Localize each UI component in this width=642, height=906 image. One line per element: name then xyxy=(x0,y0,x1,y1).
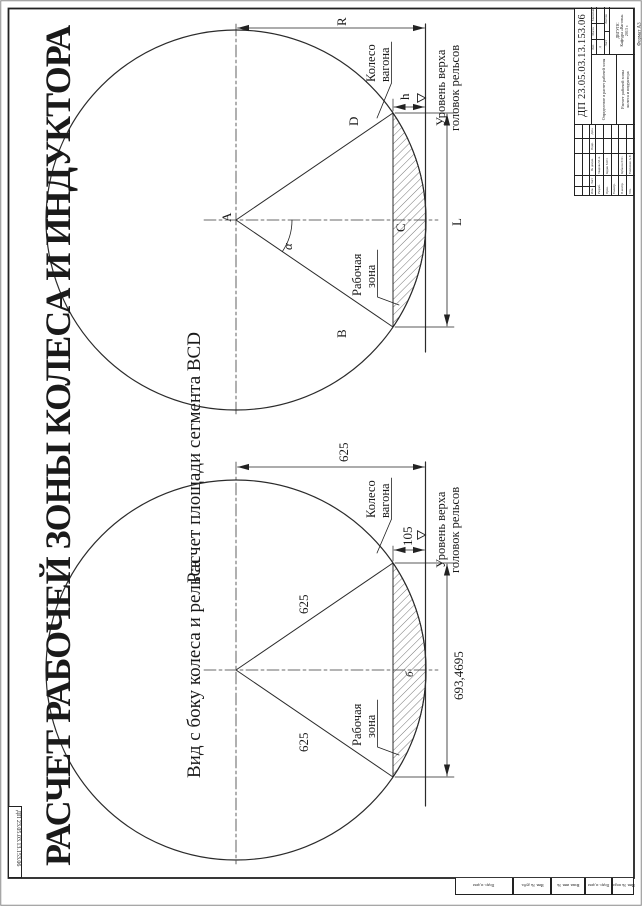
revision-cell xyxy=(583,175,591,186)
zone-label-line2: зона xyxy=(364,714,378,738)
sheet-title: РАСЧЕТ РАБОЧЕЙ ЗОНЫ КОЛЕСА И ИНДУКТОРА xyxy=(38,25,78,866)
format-note: Формат А3 xyxy=(638,22,642,46)
chord-value-label: 693,4695 xyxy=(451,651,466,700)
margin-stamp: Инв. № подл. xyxy=(612,878,634,895)
margin-stamp: Подп. и дата xyxy=(585,878,612,895)
point-c-label: C xyxy=(393,223,408,232)
margin-stamp-label: Инв. № дубл. xyxy=(521,883,544,888)
sign-cell xyxy=(596,138,604,153)
level-mark-icon xyxy=(418,531,426,539)
revision-cell xyxy=(575,186,583,195)
margin-stamp: Подп. и дата xyxy=(455,878,513,895)
revision-cell xyxy=(575,175,583,186)
point-a-label: A xyxy=(219,212,234,222)
wheel-label-line1: Колесо xyxy=(364,480,378,518)
side-diagram-subtitle: Вид с боку колеса и рельса xyxy=(184,559,205,778)
drawing-sheet: A B C D R L h α Колесо вагона Рабочая зо… xyxy=(0,0,642,906)
role-prov: Пров. xyxy=(604,175,612,195)
margin-stamp-label: Подп. и дата xyxy=(588,883,609,888)
zone-label-line1: Рабочая xyxy=(350,253,364,296)
role-utv: Утв. xyxy=(627,175,635,195)
margin-stamp-label: Инв. № подл. xyxy=(612,883,635,888)
height-dim-label: h xyxy=(397,93,412,100)
working-zone-hatch xyxy=(393,563,426,777)
revision-cell xyxy=(583,124,591,138)
role-tkontr: Т.контр. xyxy=(612,175,620,195)
sign-cell xyxy=(619,138,627,153)
revision-cell xyxy=(575,153,583,175)
wheel-label-line2: вагона xyxy=(378,483,392,518)
rail-label-line1: Уровень верха xyxy=(434,49,448,126)
revision-cell xyxy=(583,153,591,175)
date-cell xyxy=(596,124,604,138)
angle-label: α xyxy=(280,242,295,250)
radius-value-upper: 625 xyxy=(296,595,311,615)
height-value-label: 105 xyxy=(400,527,415,547)
name-prov: Кудин М.Ю. xyxy=(604,153,612,175)
chord-dim-label: L xyxy=(449,218,464,226)
center-point-label: б xyxy=(404,671,416,677)
role-razrab: Разраб. xyxy=(596,175,604,195)
revision-cell xyxy=(575,138,583,153)
revision-cell xyxy=(583,186,591,195)
zone-label-line1: Рабочая xyxy=(350,703,364,746)
name-tkontr xyxy=(612,153,620,175)
margin-stamp-label: Взам. инв. № xyxy=(557,883,580,888)
date-cell xyxy=(612,124,620,138)
margin-stamp: Инв. № дубл. xyxy=(513,878,551,895)
name-nkontr: Кубасов Ю.С. xyxy=(619,153,627,175)
radius-value-lower: 625 xyxy=(296,733,311,753)
point-d-label: D xyxy=(346,117,361,126)
drawing-canvas: A B C D R L h α Колесо вагона Рабочая зо… xyxy=(0,0,642,906)
radius-dim-label: R xyxy=(334,17,349,26)
revision-cell xyxy=(583,138,591,153)
date-cell xyxy=(604,124,612,138)
sign-cell xyxy=(627,138,635,153)
org-cell: ДВГУПС Кафедра «Вагоны» 2013 г. xyxy=(610,7,635,54)
segment-diagram-subtitle: Расчет площади сегмента BCD xyxy=(184,332,205,583)
segment-diagram xyxy=(46,24,454,414)
lit-value: Д xyxy=(597,39,605,54)
side-diagram xyxy=(46,462,454,864)
corner-designation-stamp: ДП 23.05.03.13.153.06 xyxy=(8,806,22,878)
org-line3: 2013 г. xyxy=(625,25,629,36)
doc-name-line2: колеса и индуктора xyxy=(626,71,631,107)
wheel-label-line2: вагона xyxy=(378,47,392,82)
point-b-label: B xyxy=(334,329,349,338)
name-utv: Тимченко А.В. xyxy=(627,153,635,175)
date-cell xyxy=(627,124,635,138)
sign-cell xyxy=(604,138,612,153)
role-nkontr: Н.контр. xyxy=(619,175,627,195)
revision-cell xyxy=(575,124,583,138)
theme-cell: Определение и расчет рабочей зоны xyxy=(592,54,617,124)
rail-label-line2: головок рельсов xyxy=(448,487,462,573)
radius-value-top: 625 xyxy=(336,443,351,463)
title-block: Изм. Лист № докум. Подп. Дата Разраб. Ув… xyxy=(574,8,634,196)
margin-stamp: Взам. инв. № xyxy=(551,878,585,895)
level-mark-icon xyxy=(418,94,426,102)
rail-label-line1: Уровень верха xyxy=(434,491,448,568)
rail-label-line2: головок рельсов xyxy=(448,45,462,131)
name-razrab: Уварова М.А. xyxy=(596,153,604,175)
sheet-frame xyxy=(1,1,642,906)
zone-label-line2: зона xyxy=(364,264,378,288)
scale-value xyxy=(597,7,605,23)
mass-value xyxy=(597,23,605,39)
designation-cell: ДП 23.05.03.13.153.06 xyxy=(575,7,592,124)
margin-stamp-label: Подп. и дата xyxy=(473,883,494,888)
working-zone-hatch xyxy=(393,113,426,327)
corner-designation-text: ДП 23.05.03.13.153.06 xyxy=(15,810,21,866)
date-cell xyxy=(619,124,627,138)
doc-name-cell: Расчет рабочей зоны колеса и индуктора xyxy=(617,54,635,124)
wheel-label-line1: Колесо xyxy=(364,44,378,82)
sign-cell xyxy=(612,138,620,153)
